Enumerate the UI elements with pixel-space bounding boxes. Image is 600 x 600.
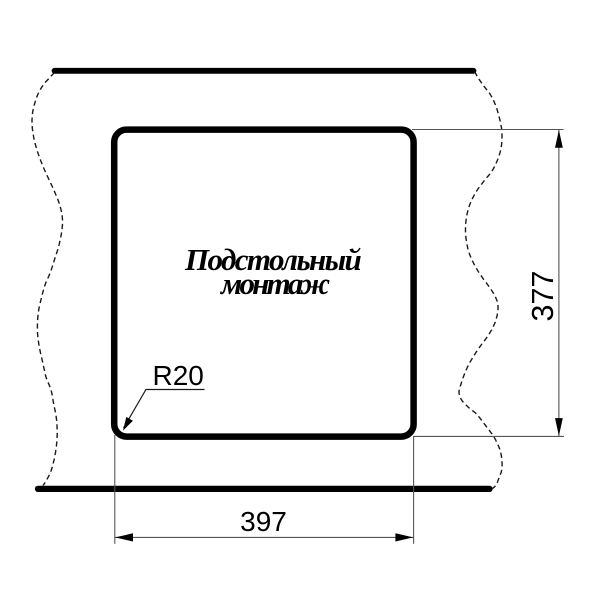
svg-text:397: 397: [240, 506, 287, 537]
svg-text:377: 377: [526, 271, 560, 322]
svg-text:монтаж: монтаж: [219, 266, 330, 301]
svg-text:R20: R20: [153, 360, 204, 391]
